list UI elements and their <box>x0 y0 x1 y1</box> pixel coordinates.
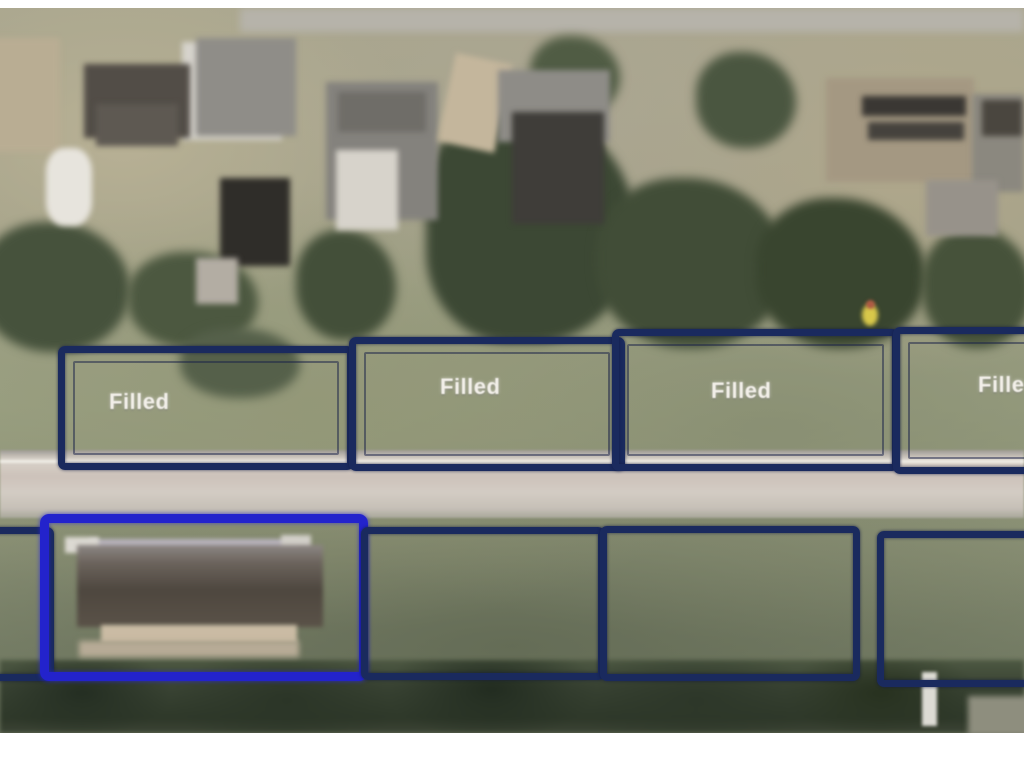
parcel-inner-boundary <box>364 352 610 456</box>
parcel-vacant-3 <box>877 531 1024 687</box>
dirt-patch <box>0 38 60 152</box>
house-roof <box>926 180 998 236</box>
parcel-filled-3: Filled <box>612 329 899 471</box>
clearing-patch <box>968 696 1024 733</box>
parcel-label: Filled <box>440 374 500 400</box>
tree-cluster <box>696 52 796 148</box>
parcel-highlighted <box>40 514 368 681</box>
parcel-vacant-1 <box>361 527 605 680</box>
tree-cluster <box>0 222 130 352</box>
red-object <box>866 300 875 309</box>
tree-cluster <box>756 198 926 348</box>
roof-ridge <box>862 96 966 116</box>
top-road-band <box>240 8 1024 32</box>
house-roof <box>96 104 178 146</box>
roof-ridge <box>982 100 1022 136</box>
aerial-photo: Filled Filled Filled Filled <box>0 8 1024 733</box>
parcel-filled-4: Filled <box>893 327 1024 474</box>
parcel-filled-2: Filled <box>349 337 625 471</box>
tree-cluster <box>296 230 396 340</box>
roof-ridge <box>868 122 964 140</box>
house-roof <box>196 38 296 136</box>
gravel-patch <box>79 641 299 657</box>
parcel-filled-1: Filled <box>58 346 354 470</box>
building-roof <box>77 545 323 627</box>
parcel-label: Filled <box>109 389 169 415</box>
parcel-inner-boundary <box>908 342 1024 459</box>
house-shadow <box>512 112 604 224</box>
house-roof <box>338 92 426 132</box>
driveway <box>336 150 398 230</box>
shed-roof <box>220 178 290 266</box>
trailer <box>46 148 92 226</box>
parcel-label: Filled <box>711 378 771 404</box>
shed-roof <box>196 258 238 304</box>
bottom-margin <box>0 733 1024 768</box>
top-margin <box>0 0 1024 8</box>
parcel-vacant-2 <box>600 526 860 681</box>
parcel-label: Filled <box>978 372 1024 398</box>
screenshot-canvas: Filled Filled Filled Filled <box>0 0 1024 768</box>
